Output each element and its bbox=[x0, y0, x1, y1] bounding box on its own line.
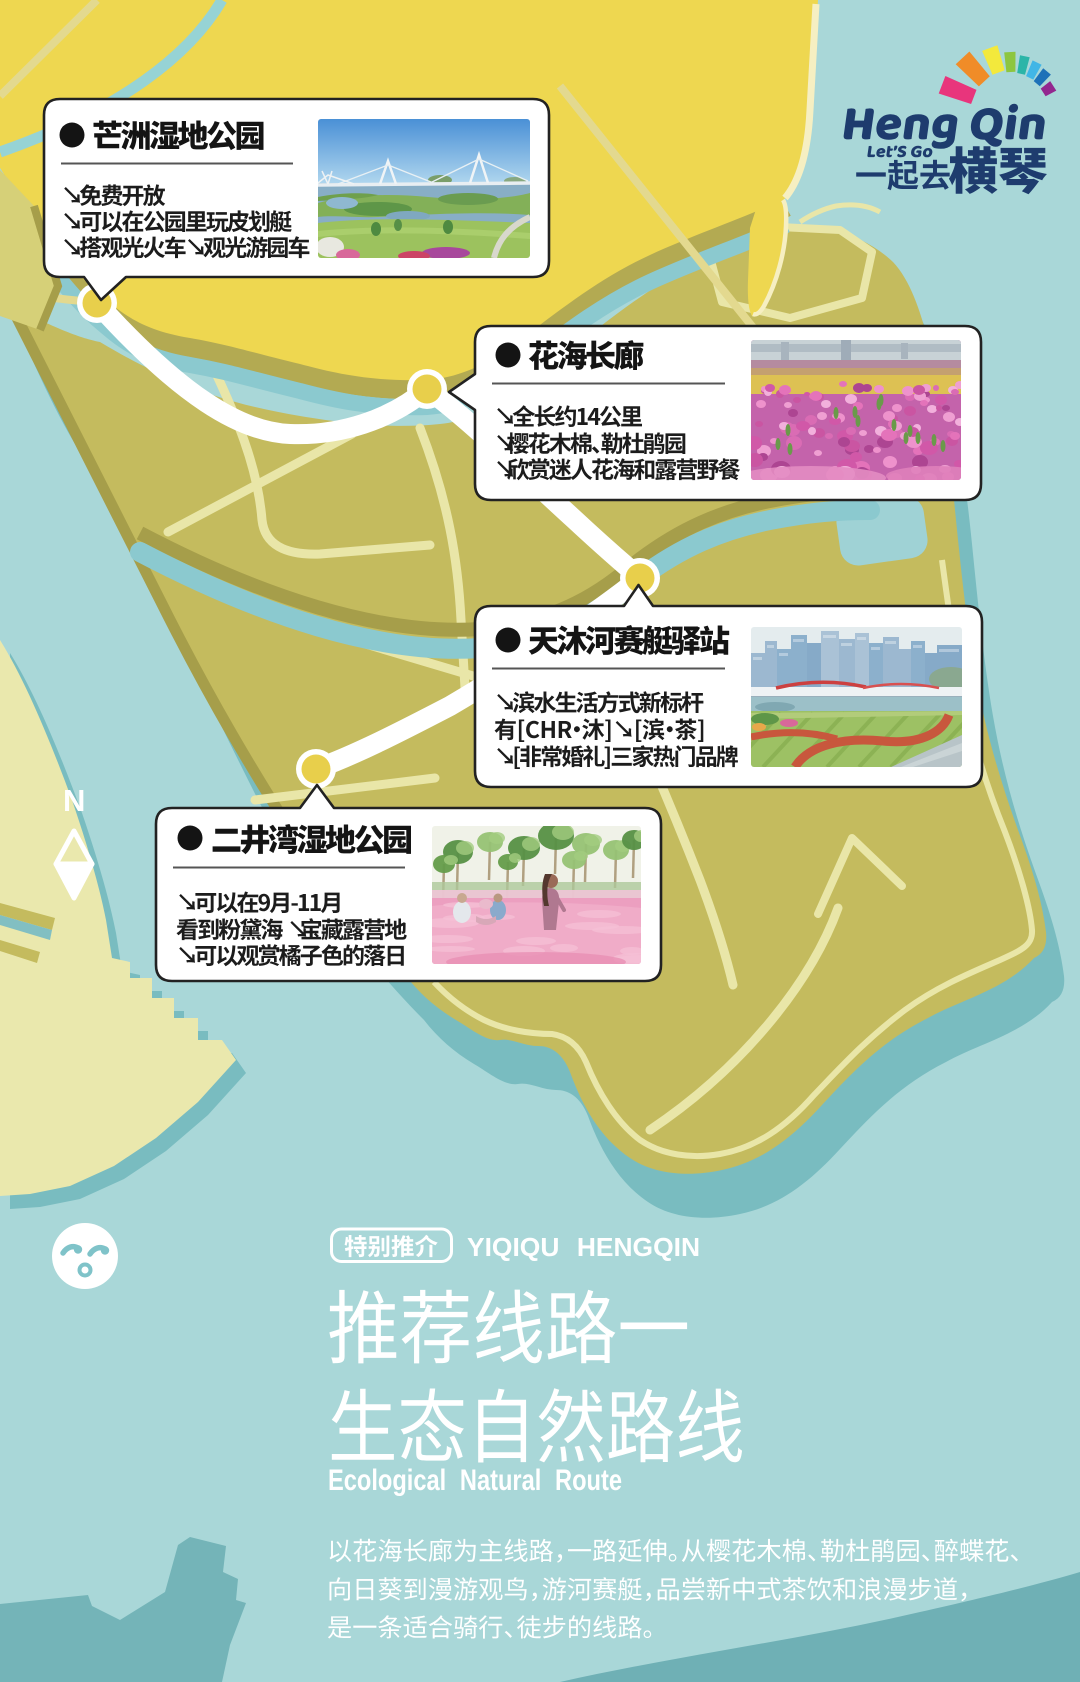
svg-text:Ecological Natural Route: Ecological Natural Route bbox=[328, 1464, 622, 1497]
svg-text:YIQIQU HENGQIN: YIQIQU HENGQIN bbox=[467, 1232, 700, 1262]
svg-text:N: N bbox=[63, 783, 85, 818]
